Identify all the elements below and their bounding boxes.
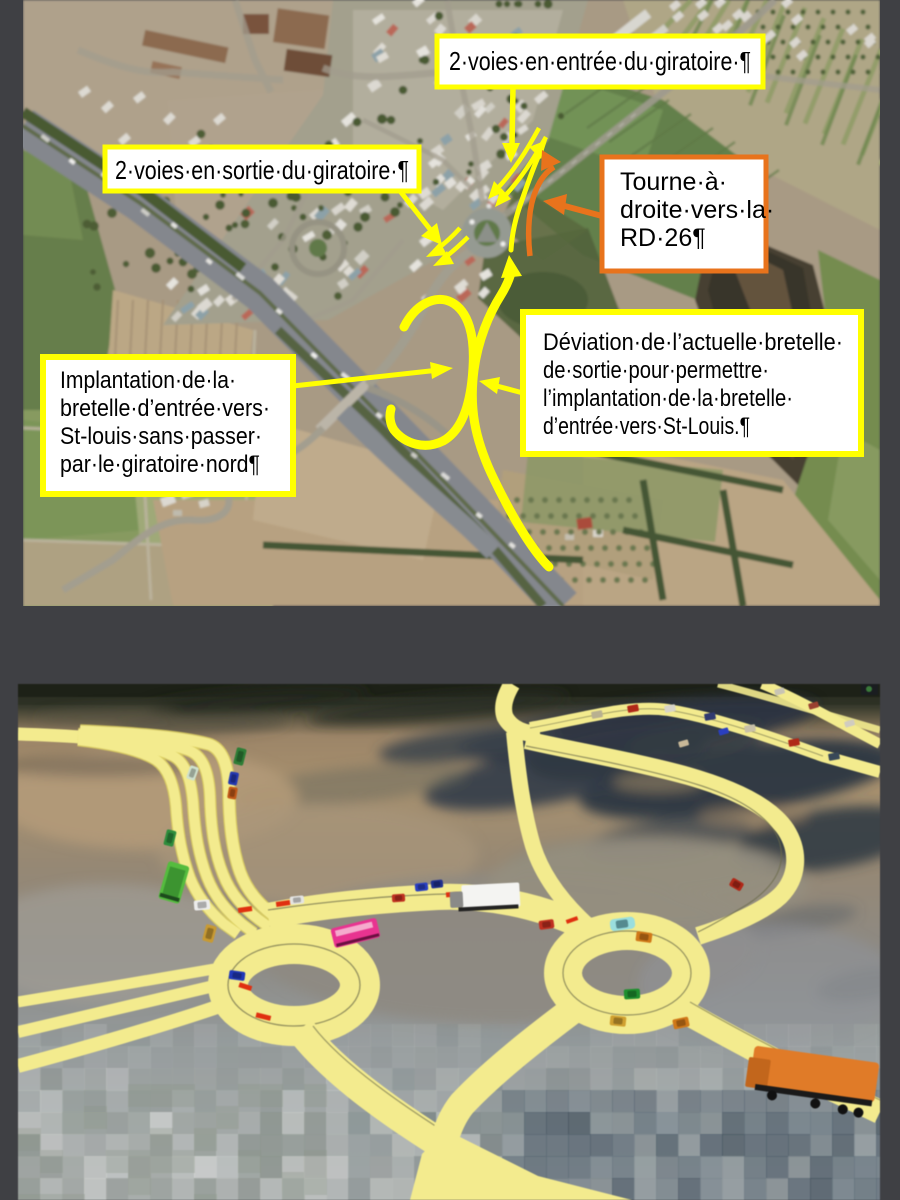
- svg-text:St-louis·sans·passer·: St-louis·sans·passer·: [60, 423, 262, 450]
- svg-text:2·voies·en·entrée·du·giratoire: 2·voies·en·entrée·du·giratoire·¶: [449, 46, 751, 76]
- svg-text:par·le·giratoire·nord¶: par·le·giratoire·nord¶: [60, 451, 260, 478]
- svg-text:Déviation·de·l’actuelle·bretel: Déviation·de·l’actuelle·bretelle·: [543, 329, 843, 356]
- svg-text:l’implantation·de·la·bretelle·: l’implantation·de·la·bretelle·: [543, 385, 793, 412]
- svg-text:de·sortie·pour·permettre·: de·sortie·pour·permettre·: [543, 357, 769, 384]
- svg-text:Tourne·à·: Tourne·à·: [620, 168, 727, 196]
- svg-text:2·voies·en·sortie·du·giratoire: 2·voies·en·sortie·du·giratoire·¶: [115, 155, 409, 185]
- svg-text:d’entrée·vers·St-Louis.¶: d’entrée·vers·St-Louis.¶: [543, 413, 750, 440]
- svg-text:Implantation·de·la·: Implantation·de·la·: [60, 367, 236, 394]
- svg-text:RD·26¶: RD·26¶: [620, 224, 706, 252]
- svg-text:droite·vers·la·: droite·vers·la·: [620, 196, 774, 224]
- svg-text:bretelle·d’entrée·vers·: bretelle·d’entrée·vers·: [60, 395, 270, 422]
